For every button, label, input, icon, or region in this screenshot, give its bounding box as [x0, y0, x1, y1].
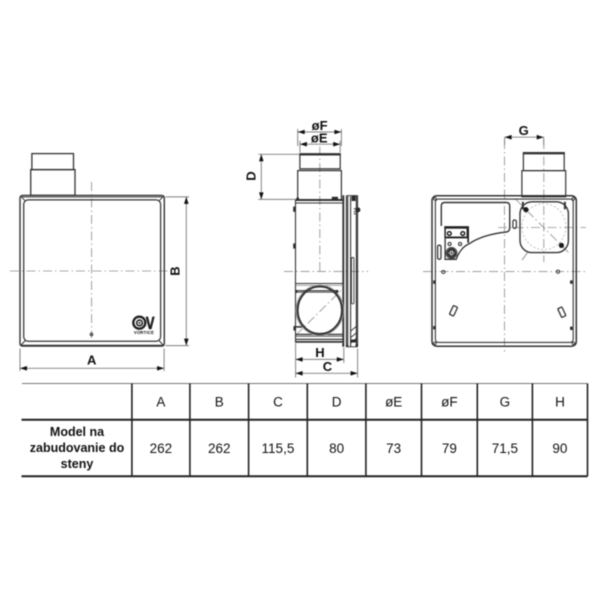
svg-text:262: 262	[150, 441, 173, 456]
svg-text:79: 79	[442, 441, 457, 456]
svg-text:B: B	[215, 394, 224, 409]
svg-text:øE: øE	[385, 394, 402, 409]
svg-text:H: H	[555, 394, 565, 409]
svg-text:90: 90	[552, 441, 567, 456]
svg-text:C: C	[323, 359, 333, 374]
svg-text:G: G	[519, 123, 529, 138]
svg-text:80: 80	[329, 441, 344, 456]
svg-text:A: A	[156, 394, 165, 409]
svg-text:115,5: 115,5	[262, 441, 295, 456]
svg-text:D: D	[244, 171, 259, 180]
svg-text:øF: øF	[441, 394, 458, 409]
svg-text:C: C	[273, 394, 283, 409]
svg-text:73: 73	[386, 441, 401, 456]
svg-text:Model na: Model na	[50, 425, 105, 439]
svg-text:G: G	[500, 394, 511, 409]
svg-text:D: D	[332, 394, 342, 409]
svg-text:zabudovanie do: zabudovanie do	[30, 441, 125, 455]
svg-text:B: B	[167, 266, 182, 275]
svg-text:262: 262	[208, 441, 231, 456]
svg-text:71,5: 71,5	[492, 441, 518, 456]
svg-text:A: A	[87, 352, 97, 367]
svg-text:steny: steny	[61, 457, 94, 471]
svg-text:VORTICE: VORTICE	[134, 330, 154, 335]
svg-text:H: H	[315, 345, 324, 360]
svg-text:øE: øE	[311, 131, 328, 146]
